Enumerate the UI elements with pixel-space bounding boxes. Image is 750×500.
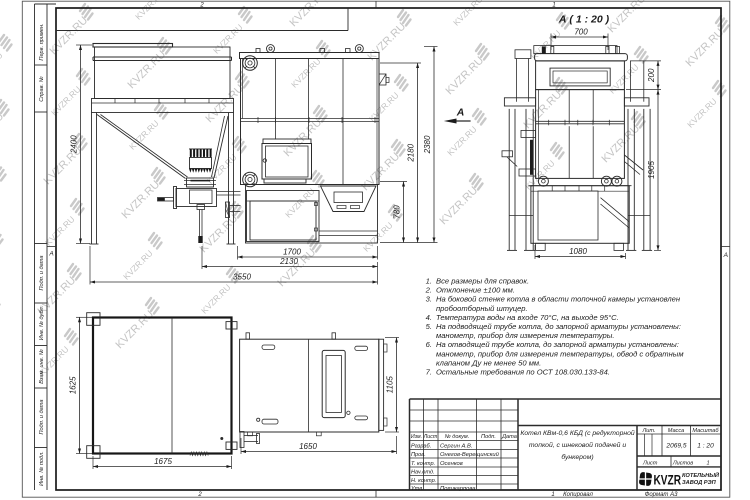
- svg-text:КОТЕЛЬНЫЙ: КОТЕЛЬНЫЙ: [682, 471, 720, 479]
- svg-text:Подп. и дата: Подп. и дата: [39, 255, 45, 290]
- svg-text:А: А: [48, 251, 53, 258]
- svg-text:На подводящей трубе котла, до: На подводящей трубе котла, до запорной а…: [436, 322, 681, 331]
- svg-text:1700: 1700: [283, 248, 301, 257]
- svg-text:200: 200: [647, 68, 656, 83]
- svg-text:№ докум.: № докум.: [445, 434, 470, 440]
- svg-text:2130: 2130: [279, 257, 298, 266]
- svg-text:Масштаб: Масштаб: [692, 428, 719, 434]
- svg-text:1905: 1905: [647, 161, 656, 179]
- svg-text:Разраб.: Разраб.: [411, 443, 431, 449]
- svg-text:1 : 20: 1 : 20: [697, 443, 714, 450]
- svg-text:Онегов-Верещинский: Онегов-Верещинский: [440, 451, 500, 458]
- svg-text:Взам. инв. №: Взам. инв. №: [39, 349, 45, 384]
- svg-text:А: А: [723, 252, 728, 259]
- svg-text:1.: 1.: [426, 277, 432, 286]
- svg-text:топкой, с шнековой подачей и: топкой, с шнековой подачей и: [529, 441, 627, 449]
- svg-text:Инв. № подл.: Инв. № подл.: [39, 451, 45, 486]
- svg-text:1: 1: [551, 492, 554, 498]
- svg-text:На боковой стенке котла в обла: На боковой стенке котла в области топочн…: [436, 295, 681, 304]
- svg-text:2180: 2180: [407, 143, 416, 162]
- svg-text:А ( 1 : 20 ): А ( 1 : 20 ): [558, 14, 610, 26]
- svg-text:ЗАВОД РЭП: ЗАВОД РЭП: [682, 480, 717, 486]
- svg-text:Сергин А.В.: Сергин А.В.: [440, 443, 472, 449]
- svg-text:Отклонение ±100 мм.: Отклонение ±100 мм.: [436, 286, 515, 295]
- svg-text:2380: 2380: [423, 135, 432, 154]
- svg-text:Пров.: Пров.: [411, 452, 426, 458]
- svg-text:780: 780: [393, 205, 402, 219]
- svg-text:Остальные требования по ОСТ 10: Остальные требования по ОСТ 108.030.133-…: [436, 368, 610, 377]
- svg-text:Подп. и дата: Подп. и дата: [39, 399, 45, 434]
- svg-text:Н. контр.: Н. контр.: [411, 478, 436, 484]
- svg-text:Нач.отд.: Нач.отд.: [411, 469, 435, 475]
- svg-text:клапаном Ду не менее 50 мм.: клапаном Ду не менее 50 мм.: [436, 358, 541, 367]
- svg-text:пробоотборный штуцер.: пробоотборный штуцер.: [436, 304, 528, 313]
- svg-text:Поликарпова: Поликарпова: [440, 486, 476, 492]
- svg-text:Температура воды на входе 70°С: Температура воды на входе 70°С, на выход…: [436, 313, 619, 322]
- svg-text:2: 2: [197, 492, 202, 498]
- svg-text:3550: 3550: [233, 273, 251, 282]
- svg-text:5.: 5.: [426, 322, 432, 331]
- svg-text:6.: 6.: [426, 340, 432, 349]
- svg-text:манометр, прибор для измерения: манометр, прибор для измерения температу…: [436, 331, 614, 340]
- svg-text:Листов: Листов: [672, 461, 693, 467]
- svg-text:3.: 3.: [426, 295, 432, 304]
- svg-text:бункером): бункером): [561, 453, 593, 461]
- svg-text:1105: 1105: [386, 376, 395, 394]
- svg-text:Лит.: Лит.: [641, 428, 655, 434]
- svg-text:1: 1: [706, 461, 709, 467]
- svg-text:4.: 4.: [426, 313, 432, 322]
- svg-text:Изм.: Изм.: [411, 434, 422, 440]
- svg-text:Формат А3: Формат А3: [645, 492, 678, 498]
- svg-text:2.: 2.: [425, 286, 432, 295]
- svg-text:Осенков: Осенков: [440, 461, 463, 467]
- svg-text:манометр, прибор для измерения: манометр, прибор для измерения температу…: [436, 349, 684, 358]
- svg-text:700: 700: [574, 28, 588, 37]
- svg-text:KVZR: KVZR: [654, 473, 682, 488]
- svg-text:Утв.: Утв.: [410, 486, 424, 492]
- svg-text:2: 2: [199, 3, 204, 9]
- svg-text:Инв. № дубл.: Инв. № дубл.: [39, 306, 45, 340]
- svg-text:Масса: Масса: [668, 428, 685, 434]
- svg-text:Т. контр.: Т. контр.: [411, 461, 435, 467]
- svg-text:1625: 1625: [69, 376, 78, 394]
- svg-text:А: А: [456, 107, 465, 119]
- svg-text:Лист: Лист: [423, 434, 438, 440]
- svg-text:2069,5: 2069,5: [665, 443, 687, 450]
- svg-text:Лист: Лист: [642, 461, 658, 467]
- svg-text:На отводящей трубе котла, до з: На отводящей трубе котла, до запорной ар…: [436, 340, 679, 349]
- svg-text:Копировал: Копировал: [563, 492, 593, 498]
- svg-text:Котел КВм-0,6 КБД (с редукторн: Котел КВм-0,6 КБД (с редукторной: [520, 429, 635, 437]
- svg-text:2400: 2400: [70, 135, 79, 154]
- svg-text:1: 1: [552, 3, 555, 9]
- svg-text:1650: 1650: [299, 442, 317, 451]
- svg-text:1080: 1080: [569, 247, 587, 256]
- svg-text:Все размеры для справок.: Все размеры для справок.: [436, 277, 529, 286]
- svg-text:Перв. примен.: Перв. примен.: [39, 23, 45, 60]
- svg-text:Дата: Дата: [501, 434, 517, 440]
- svg-text:7.: 7.: [426, 368, 432, 377]
- svg-text:Справ. №: Справ. №: [39, 76, 45, 101]
- svg-text:1675: 1675: [154, 457, 172, 466]
- svg-text:Подп.: Подп.: [481, 434, 496, 440]
